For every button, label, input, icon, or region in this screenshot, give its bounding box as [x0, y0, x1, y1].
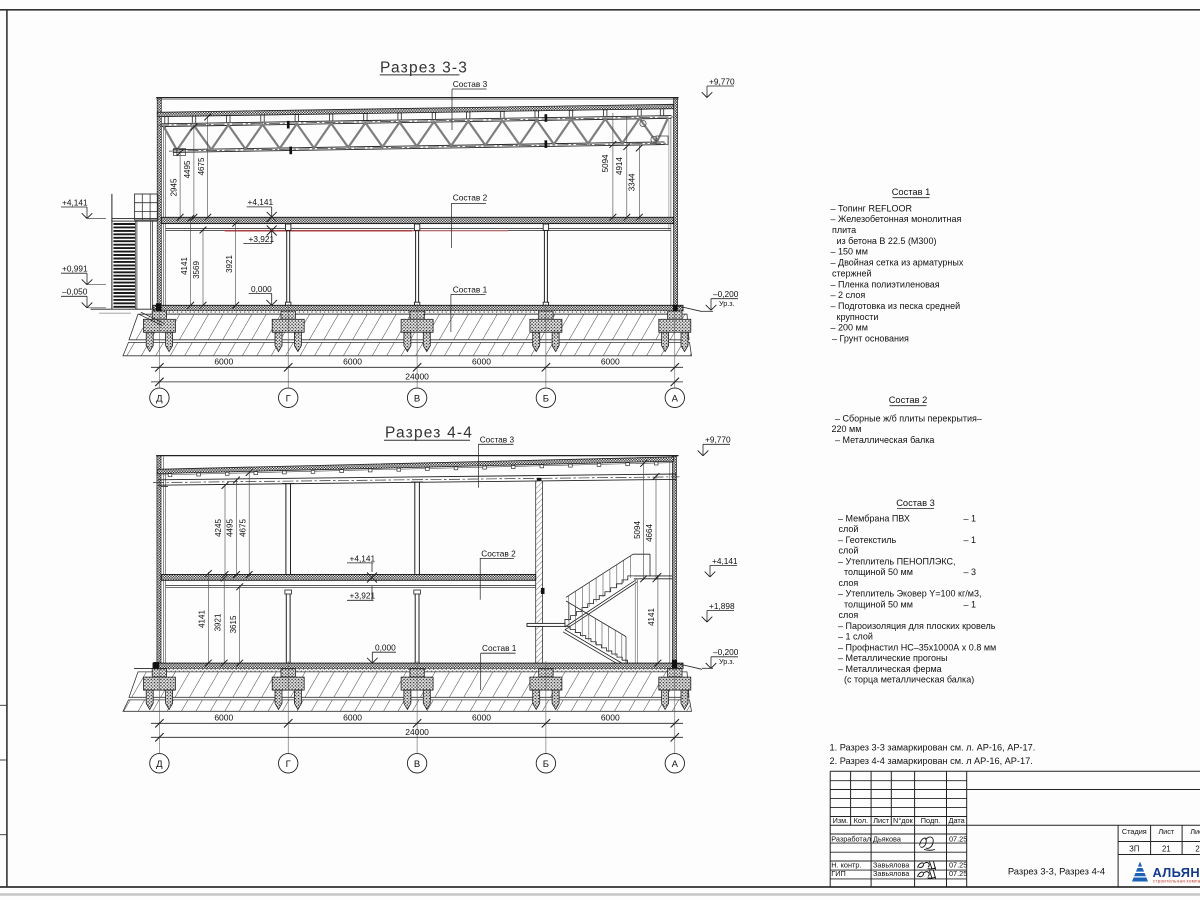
- svg-text:толщиной 50 мм: толщиной 50 мм: [844, 599, 913, 609]
- svg-text:0,000: 0,000: [375, 642, 396, 652]
- svg-text:– Металлическая ферма: – Металлическая ферма: [838, 664, 942, 674]
- svg-text:6000: 6000: [601, 713, 620, 723]
- svg-text:Состав 1: Состав 1: [453, 284, 488, 294]
- svg-text:– Профнастил НС–35х1000А х 0.8: – Профнастил НС–35х1000А х 0.8 мм: [838, 642, 996, 652]
- svg-text:толщиной 50 мм: толщиной 50 мм: [844, 567, 913, 577]
- svg-text:Состав 3: Состав 3: [480, 434, 515, 444]
- svg-text:– Пароизоляция для плоских кро: – Пароизоляция для плоских кровель: [838, 621, 996, 631]
- svg-text:–0,200: –0,200: [713, 289, 739, 299]
- svg-text:В: В: [414, 759, 420, 770]
- svg-text:Дата: Дата: [949, 816, 966, 825]
- svg-text:+4,141: +4,141: [62, 197, 88, 207]
- svg-text:24000: 24000: [405, 727, 429, 737]
- svg-text:– 3: – 3: [964, 567, 977, 577]
- svg-text:А: А: [672, 393, 679, 404]
- svg-text:Д: Д: [156, 759, 163, 770]
- svg-text:– Топинг REFLOOR: – Топинг REFLOOR: [831, 203, 913, 213]
- svg-text:– 1 слой: – 1 слой: [838, 632, 873, 642]
- svg-text:1. Разрез 3-3 замаркирован см.: 1. Разрез 3-3 замаркирован см. л. АР-16,…: [830, 743, 1036, 753]
- svg-text:– 2 слоя: – 2 слоя: [831, 290, 866, 300]
- svg-text:плита: плита: [832, 225, 856, 235]
- svg-text:+1,898: +1,898: [709, 601, 735, 611]
- svg-text:Состав 1: Состав 1: [892, 187, 931, 197]
- svg-text:Состав 2: Состав 2: [889, 395, 928, 405]
- svg-text:+4,141: +4,141: [350, 553, 376, 563]
- svg-text:–0,200: –0,200: [713, 647, 739, 657]
- svg-text:07.25: 07.25: [949, 869, 967, 878]
- svg-text:4675: 4675: [238, 519, 247, 537]
- svg-text:ЗП: ЗП: [1129, 844, 1139, 853]
- svg-text:Изм.: Изм.: [833, 816, 849, 825]
- svg-text:6000: 6000: [214, 357, 233, 367]
- svg-text:5094: 5094: [601, 154, 610, 172]
- svg-text:Ур.з.: Ур.з.: [719, 657, 735, 666]
- svg-text:6000: 6000: [472, 357, 491, 367]
- svg-text:6000: 6000: [343, 713, 362, 723]
- svg-text:Состав 1: Состав 1: [482, 643, 517, 653]
- svg-text:4495: 4495: [183, 160, 192, 178]
- svg-text:+4,141: +4,141: [712, 556, 738, 566]
- svg-text:– Железобетонная монолитная: – Железобетонная монолитная: [831, 214, 962, 224]
- svg-text:слоя: слоя: [839, 578, 859, 588]
- svg-text:Разрез 3-3: Разрез 3-3: [380, 60, 468, 77]
- svg-text:+4,141: +4,141: [248, 197, 274, 207]
- svg-text:Лист: Лист: [1158, 827, 1175, 836]
- svg-text:4141: 4141: [198, 610, 207, 628]
- svg-text:Лис: Лис: [1190, 827, 1200, 836]
- svg-text:В: В: [414, 393, 420, 404]
- svg-text:Разрез 4-4: Разрез 4-4: [385, 425, 473, 442]
- svg-text:4245: 4245: [214, 519, 223, 537]
- svg-text:– Геотекстиль: – Геотекстиль: [838, 535, 897, 545]
- svg-text:N°док: N°док: [893, 816, 914, 825]
- svg-text:Г: Г: [286, 759, 291, 770]
- svg-text:строительная компания: строительная компания: [1153, 879, 1200, 884]
- svg-text:6000: 6000: [601, 357, 620, 367]
- svg-text:4141: 4141: [180, 257, 189, 275]
- svg-text:Б: Б: [543, 393, 549, 404]
- svg-text:Разрез 3-3, Разрез 4-4: Разрез 3-3, Разрез 4-4: [1008, 865, 1105, 876]
- svg-text:– 150 мм: – 150 мм: [831, 247, 868, 257]
- svg-text:4914: 4914: [615, 157, 624, 175]
- svg-text:А: А: [672, 759, 679, 770]
- svg-text:Состав 3: Состав 3: [896, 498, 935, 508]
- svg-text:Разработал: Разработал: [831, 834, 871, 843]
- svg-text:3569: 3569: [192, 261, 201, 279]
- svg-text:– Сборные ж/б плиты перекрытия: – Сборные ж/б плиты перекрытия–: [835, 413, 982, 423]
- svg-text:Состав 2: Состав 2: [453, 193, 488, 203]
- svg-text:– Утеплитель ПЕНОПЛЭКС,: – Утеплитель ПЕНОПЛЭКС,: [838, 556, 956, 566]
- svg-text:3615: 3615: [229, 615, 238, 633]
- svg-text:– 1: – 1: [964, 599, 977, 609]
- svg-text:5094: 5094: [633, 521, 642, 539]
- svg-text:07.25: 07.25: [949, 834, 967, 843]
- svg-text:– Металлическая балка: – Металлическая балка: [835, 435, 934, 445]
- svg-text:3921: 3921: [225, 255, 234, 273]
- svg-text:из бетона В 22.5 (М300): из бетона В 22.5 (М300): [837, 236, 937, 246]
- svg-text:21: 21: [1162, 844, 1171, 853]
- svg-text:– Мембрана ПВХ: – Мембрана ПВХ: [838, 513, 910, 523]
- svg-text:Г: Г: [286, 393, 291, 404]
- svg-text:4664: 4664: [645, 524, 654, 542]
- svg-text:Б: Б: [543, 759, 549, 770]
- svg-text:Д: Д: [156, 393, 163, 404]
- svg-text:Состав 3: Состав 3: [453, 79, 488, 89]
- svg-text:– Грунт основания: – Грунт основания: [832, 334, 909, 344]
- svg-text:Дьякова: Дьякова: [873, 834, 902, 843]
- svg-text:– 1: – 1: [964, 535, 977, 545]
- svg-text:крупности: крупности: [837, 312, 879, 322]
- svg-text:+9,770: +9,770: [709, 76, 735, 86]
- svg-text:+3,921: +3,921: [249, 234, 275, 244]
- svg-text:Ур.з.: Ур.з.: [719, 299, 735, 308]
- svg-text:– Двойная сетка из арматурных: – Двойная сетка из арматурных: [831, 258, 964, 268]
- svg-text:+0,991: +0,991: [62, 264, 88, 274]
- svg-text:6000: 6000: [472, 713, 491, 723]
- svg-text:(с торца металлическая балка): (с торца металлическая балка): [844, 675, 974, 685]
- svg-text:4675: 4675: [197, 157, 206, 175]
- svg-text:+3,921: +3,921: [350, 591, 376, 601]
- svg-text:слоя: слоя: [839, 610, 859, 620]
- svg-text:– Подготовка из песка средней: – Подготовка из песка средней: [831, 301, 961, 311]
- svg-text:стержней: стержней: [832, 268, 872, 278]
- svg-text:2. Разрез 4-4 замаркирован см.: 2. Разрез 4-4 замаркирован см. л АР-16, …: [830, 756, 1033, 766]
- svg-text:– 1: – 1: [964, 513, 977, 523]
- svg-text:Н. контр.: Н. контр.: [831, 860, 861, 869]
- svg-text:3344: 3344: [627, 173, 636, 191]
- svg-text:2: 2: [1195, 844, 1199, 853]
- svg-text:Лист: Лист: [873, 816, 890, 825]
- svg-text:ГИП: ГИП: [831, 869, 845, 878]
- svg-text:Завьялова: Завьялова: [873, 869, 910, 878]
- svg-text:–0,050: –0,050: [62, 287, 88, 297]
- svg-text:24000: 24000: [405, 371, 429, 381]
- svg-text:07.25: 07.25: [949, 860, 967, 869]
- svg-text:4141: 4141: [647, 608, 656, 626]
- svg-text:– Металлические прогоны: – Металлические прогоны: [838, 653, 947, 663]
- svg-text:+9,770: +9,770: [705, 435, 731, 445]
- svg-text:6000: 6000: [214, 713, 233, 723]
- svg-text:0,000: 0,000: [251, 284, 272, 294]
- svg-text:слой: слой: [839, 524, 859, 534]
- svg-text:Стадия: Стадия: [1122, 827, 1147, 836]
- svg-text:6000: 6000: [343, 357, 362, 367]
- svg-text:Состав 2: Состав 2: [481, 548, 516, 558]
- svg-text:слой: слой: [839, 546, 859, 556]
- svg-text:3921: 3921: [213, 613, 222, 631]
- svg-text:2945: 2945: [169, 178, 178, 196]
- svg-text:– 200 мм: – 200 мм: [831, 323, 868, 333]
- svg-text:Завьялова: Завьялова: [873, 860, 910, 869]
- svg-text:– Утеплитель Эковер Y=100 кг/м: – Утеплитель Эковер Y=100 кг/м3,: [838, 589, 981, 599]
- svg-text:Подп.: Подп.: [921, 816, 940, 825]
- svg-text:4495: 4495: [226, 519, 235, 537]
- svg-text:220 мм: 220 мм: [832, 424, 862, 434]
- svg-text:Кол.: Кол.: [854, 816, 868, 825]
- svg-text:– Пленка полиэтиленовая: – Пленка полиэтиленовая: [831, 279, 940, 289]
